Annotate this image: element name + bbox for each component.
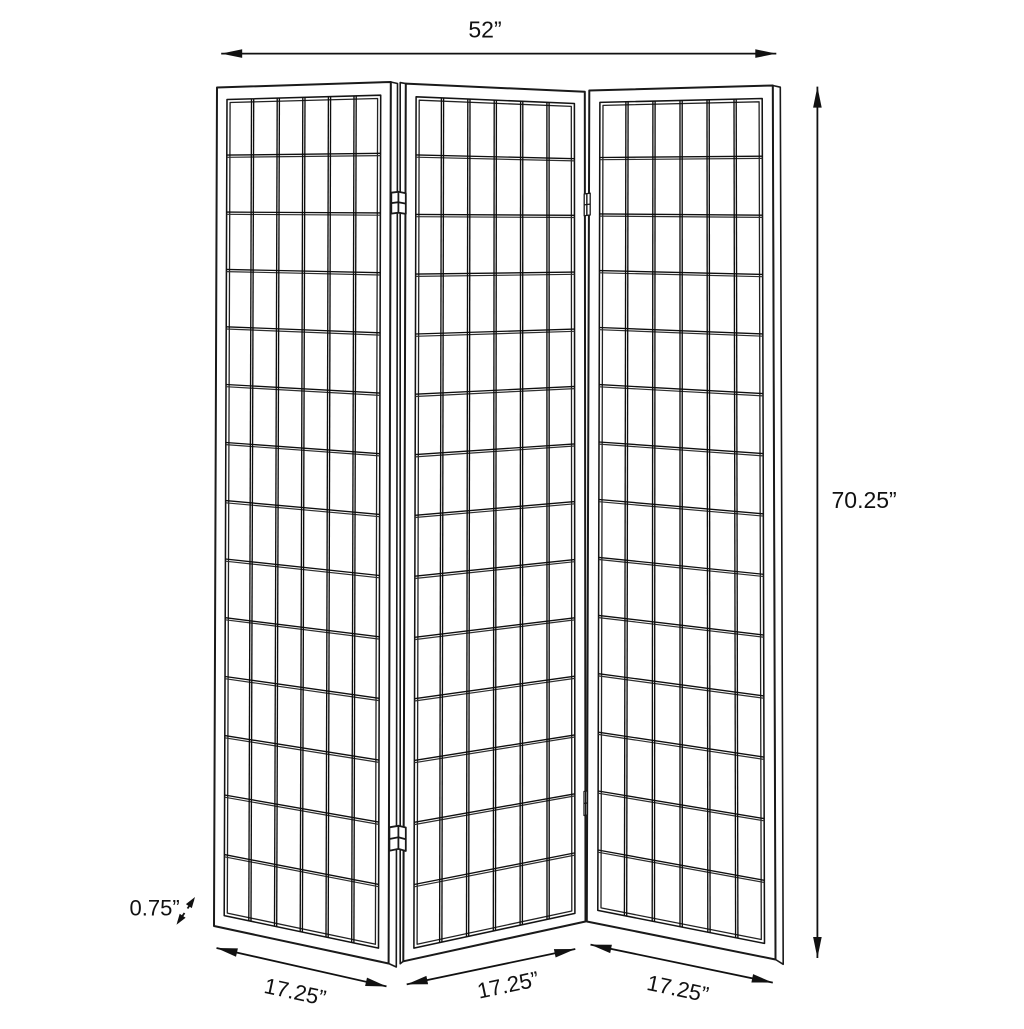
svg-text:52”: 52” (468, 17, 501, 43)
svg-text:0.75”: 0.75” (130, 896, 180, 921)
svg-text:70.25”: 70.25” (832, 487, 897, 513)
